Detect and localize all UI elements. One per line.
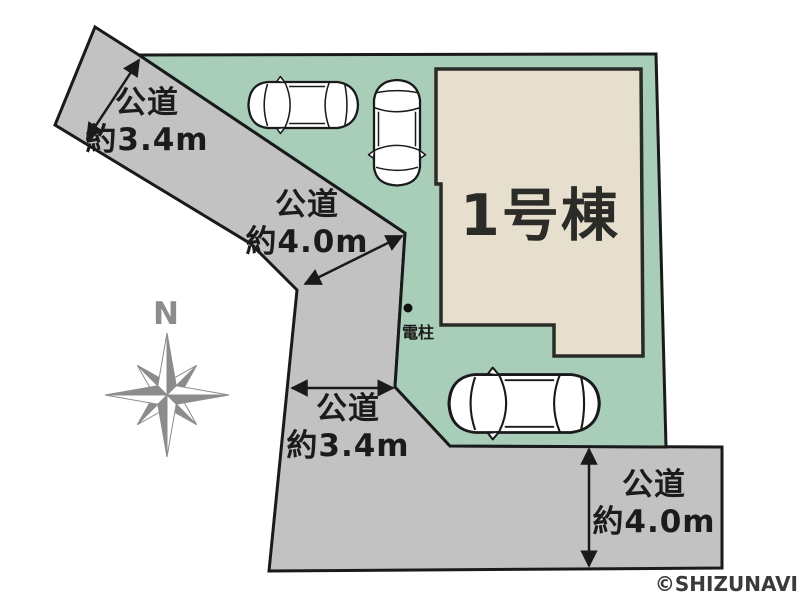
road-label-sw-line1: 公道 <box>286 391 409 428</box>
utility-pole-icon <box>404 304 413 313</box>
road-label-south-line1: 公道 <box>592 467 715 504</box>
road-label-west-line1: 公道 <box>245 187 368 224</box>
road-label-sw: 公道 約3.4m <box>286 391 409 465</box>
road-label-nw-line1: 公道 <box>85 85 208 122</box>
building-label: 1号棟 <box>460 170 620 252</box>
road-label-sw-line2: 約3.4m <box>286 428 409 465</box>
road-label-west-line2: 約4.0m <box>245 224 368 261</box>
compass-north-label: N <box>153 296 179 332</box>
site-plan: 公道 約3.4m 公道 約4.0m 公道 約3.4m 公道 約4.0m 1号棟 … <box>0 0 800 599</box>
road-label-nw: 公道 約3.4m <box>85 85 208 159</box>
compass-rose-icon <box>105 333 229 457</box>
car-icon <box>249 77 358 134</box>
road-label-south-line2: 約4.0m <box>592 504 715 541</box>
road-label-nw-line2: 約3.4m <box>85 122 208 159</box>
road-label-west: 公道 約4.0m <box>245 187 368 261</box>
copyright-watermark: ©SHIZUNAVI <box>655 572 798 596</box>
utility-pole-label: 電柱 <box>402 319 434 343</box>
car-icon <box>449 368 599 440</box>
road-label-south: 公道 約4.0m <box>592 467 715 541</box>
car-icon <box>369 80 426 185</box>
